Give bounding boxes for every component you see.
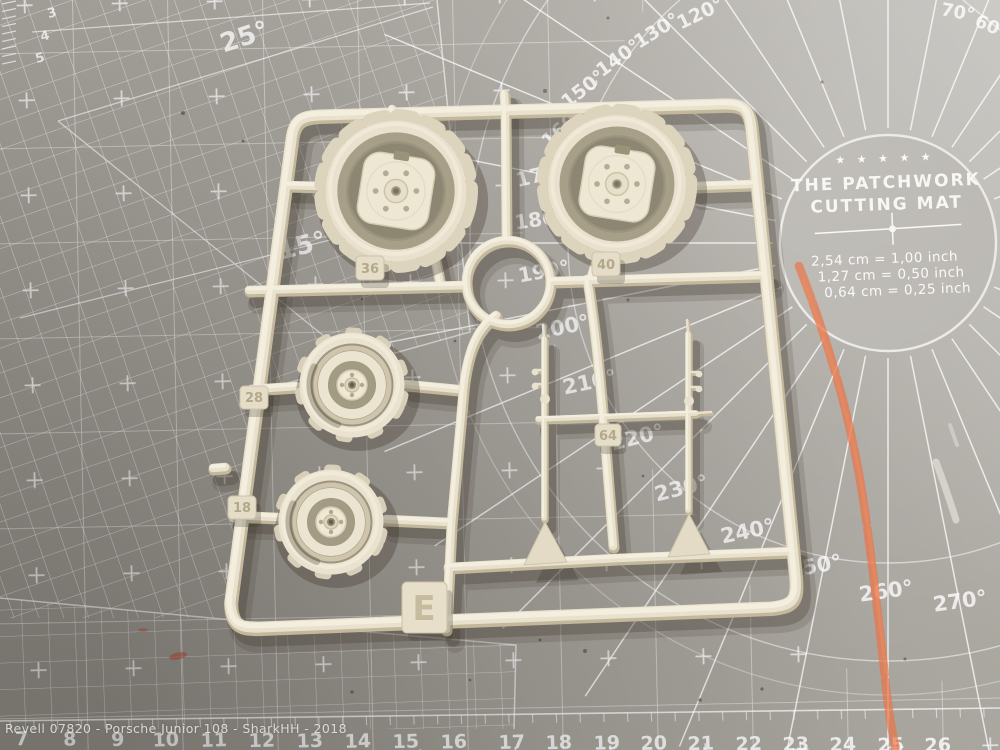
sprue-letter: E [412,589,435,629]
part-tag-40-label: 40 [597,258,615,273]
photo-sprue-on-cutting-mat: 345 789101112131415161718192021222324252… [0,0,1000,750]
part-tag-28-label: 28 [245,391,263,406]
sprue-letter-tag: E [402,582,453,641]
watermark-text: Revell 07820 - Porsche Junior 108 - Shar… [5,721,347,736]
cutting-mat: 345 789101112131415161718192021222324252… [0,0,1000,750]
part-tag-36-label: 36 [361,262,379,277]
part-tag-18-label: 18 [233,501,251,516]
part-tag-64-label: 64 [599,429,617,444]
